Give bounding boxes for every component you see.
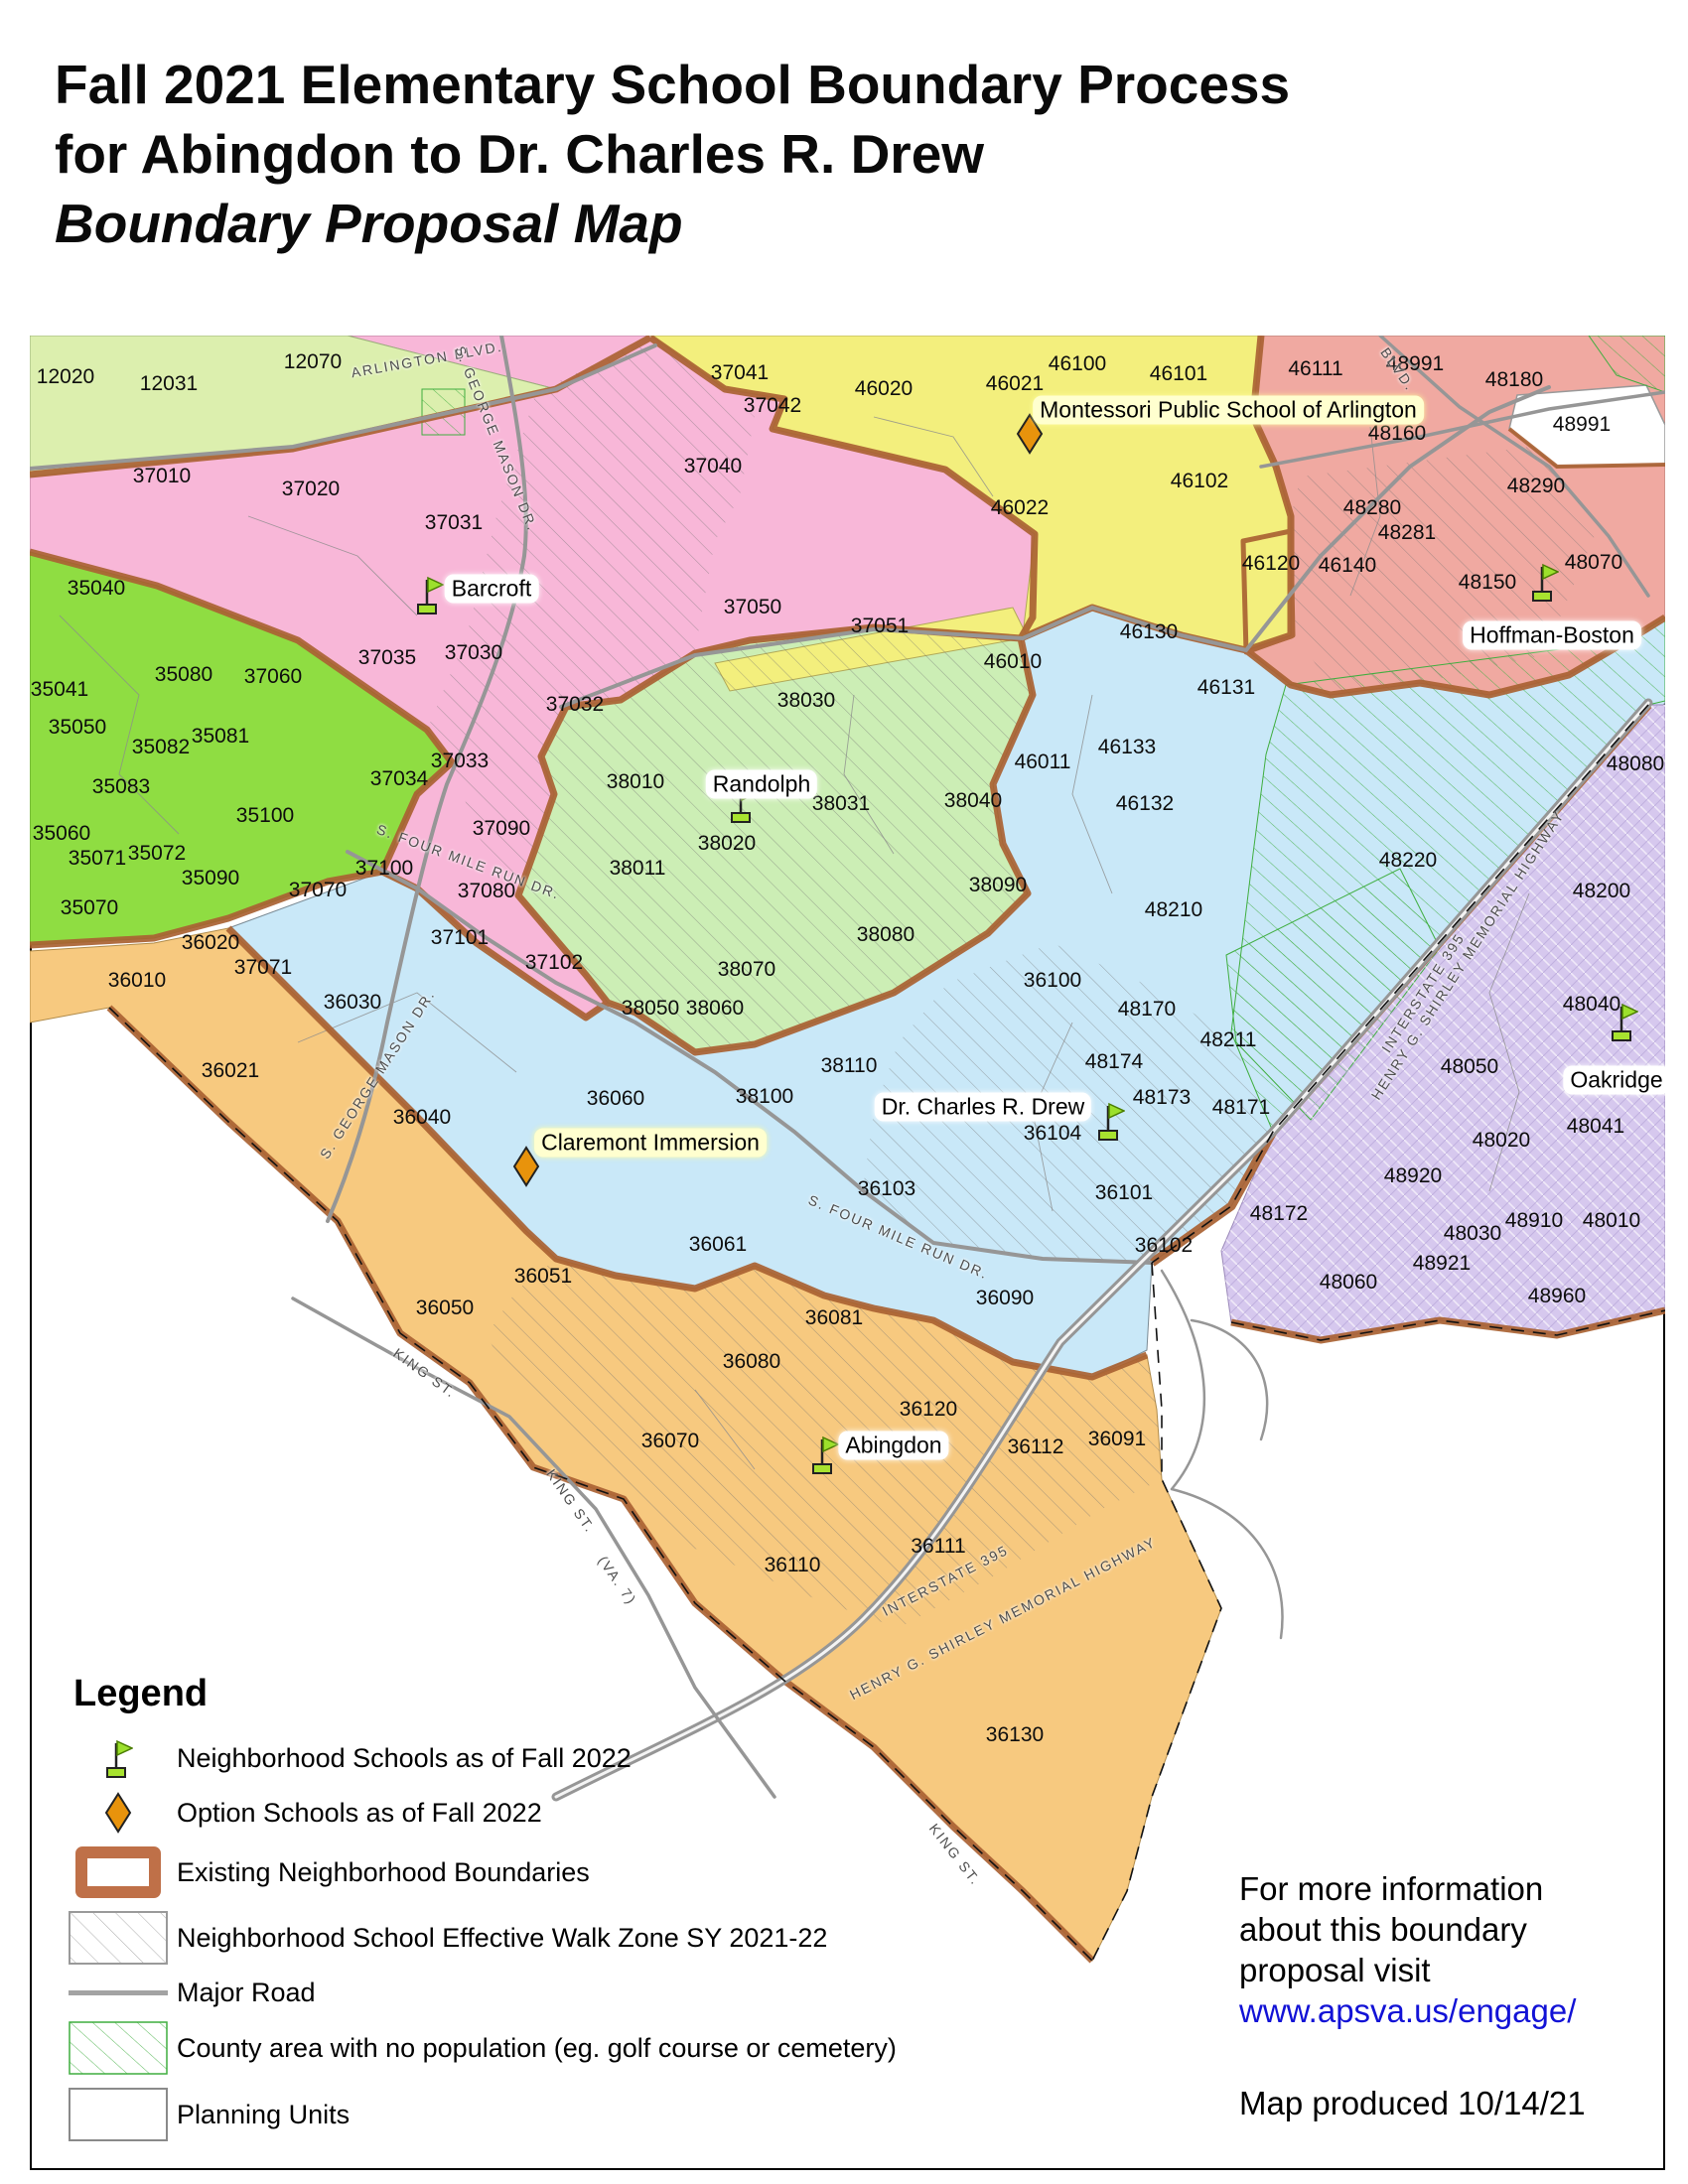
option-school-diamond-icon	[60, 1792, 177, 1834]
legend-item-label: County area with no population (eg. golf…	[177, 2033, 897, 2064]
legend: Legend Neighborhood Schools as of Fall 2…	[60, 1673, 1132, 2154]
title-line-2: for Abingdon to Dr. Charles R. Drew	[55, 119, 1290, 189]
legend-item-label: Neighborhood School Effective Walk Zone …	[177, 1923, 827, 1954]
county-hatch-swatch	[60, 2021, 177, 2075]
legend-item: Existing Neighborhood Boundaries	[60, 1846, 1132, 1898]
legend-item: Neighborhood School Effective Walk Zone …	[60, 1911, 1132, 1965]
page-title: Fall 2021 Elementary School Boundary Pro…	[55, 50, 1290, 258]
walkzone-hatch-swatch	[60, 1911, 177, 1965]
legend-item-label: Existing Neighborhood Boundaries	[177, 1857, 590, 1888]
info-line-1: For more information	[1239, 1868, 1586, 1909]
page: Fall 2021 Elementary School Boundary Pro…	[0, 0, 1688, 2184]
legend-item-label: Option Schools as of Fall 2022	[177, 1798, 542, 1829]
legend-heading: Legend	[73, 1673, 1132, 1715]
legend-item: Option Schools as of Fall 2022	[60, 1792, 1132, 1834]
legend-item: Neighborhood Schools as of Fall 2022	[60, 1737, 1132, 1779]
legend-item: County area with no population (eg. golf…	[60, 2021, 1132, 2075]
legend-items: Neighborhood Schools as of Fall 2022Opti…	[60, 1737, 1132, 2141]
legend-item: Major Road	[60, 1978, 1132, 2008]
title-line-3: Boundary Proposal Map	[55, 189, 1290, 258]
legend-item: Planning Units	[60, 2088, 1132, 2141]
legend-item-label: Major Road	[177, 1978, 316, 2008]
title-line-1: Fall 2021 Elementary School Boundary Pro…	[55, 50, 1290, 119]
legend-item-label: Neighborhood Schools as of Fall 2022	[177, 1743, 632, 1774]
legend-item-label: Planning Units	[177, 2100, 350, 2130]
info-line-3: proposal visit	[1239, 1950, 1586, 1990]
planning-unit-swatch	[60, 2088, 177, 2141]
info-block: For more information about this boundary…	[1239, 1868, 1586, 2123]
neighborhood-school-flag-icon	[60, 1737, 177, 1779]
engage-link[interactable]: www.apsva.us/engage/	[1239, 1992, 1576, 2029]
boundary-swatch	[60, 1846, 177, 1898]
major-road-swatch	[60, 1990, 177, 1995]
info-line-2: about this boundary	[1239, 1909, 1586, 1950]
map-produced-date: Map produced 10/14/21	[1239, 2083, 1586, 2123]
